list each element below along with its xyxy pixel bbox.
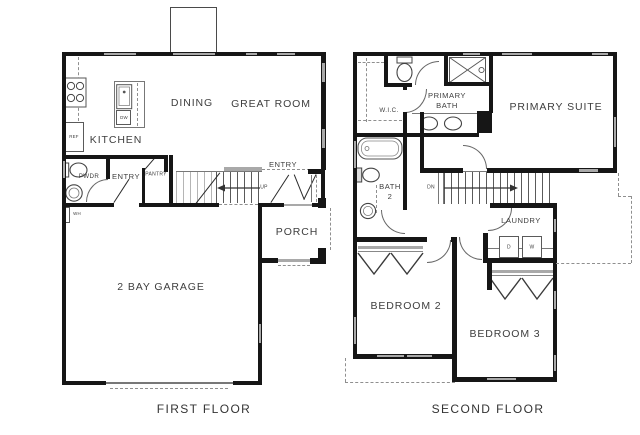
bath2-vanity-dash <box>376 185 377 213</box>
shower-icon <box>449 57 486 83</box>
bath2-door-arc <box>381 210 405 234</box>
stairs-down-arrow <box>442 182 520 194</box>
primary-bath-label-1: PRIMARY <box>428 92 466 100</box>
primary-suite-door-arc <box>463 145 487 169</box>
stair-bottom-wall <box>490 203 557 208</box>
wic-rod-dash <box>366 58 367 122</box>
roof-dash <box>618 196 631 197</box>
stair-rail <box>438 172 439 204</box>
bath2-toilet-icon <box>355 164 382 186</box>
hall-bath-wall <box>420 112 424 172</box>
wc-door-arc <box>415 61 439 85</box>
washer-label: W <box>529 246 534 251</box>
suite-right-wall <box>613 52 617 172</box>
roof-dash <box>345 382 455 383</box>
sf-window <box>502 53 532 55</box>
second-floor-title: SECOND FLOOR <box>432 403 545 415</box>
bath2-label-1: BATH <box>379 183 401 191</box>
sf-left-wall <box>353 52 357 359</box>
primary-suite-label: PRIMARY SUITE <box>510 102 603 113</box>
second-floor-plan: D W <box>0 0 640 435</box>
wic-right-wall <box>403 112 407 135</box>
wic-shelf-dash <box>358 62 384 63</box>
wic-label: W.I.C. <box>379 108 398 114</box>
bedroom3-window <box>554 291 556 309</box>
sf-top-wall <box>353 52 617 56</box>
roof-dash <box>631 196 632 263</box>
laundry-bottom-wall <box>483 258 557 263</box>
bedroom2-closet <box>358 246 423 276</box>
bath2-window <box>354 141 356 168</box>
roof-dash <box>556 263 631 264</box>
bedroom3-door-arc <box>459 237 482 260</box>
wic-shelf-dash <box>358 120 402 121</box>
bedroom-divider-wall <box>452 237 457 382</box>
laundry-label: LAUNDRY <box>501 217 541 225</box>
wc-toilet-icon <box>394 56 415 83</box>
vanity-end-wall <box>477 111 492 133</box>
laundry-window <box>554 219 556 232</box>
roof-dash <box>618 173 619 196</box>
bedroom2-top-wall <box>353 237 427 242</box>
bedroom3-bottom-window <box>487 378 516 380</box>
closet3-left-wall <box>487 262 492 290</box>
bedroom2-window <box>407 355 432 357</box>
bath2-right-wall <box>403 137 407 210</box>
suite-bottom-window <box>579 169 598 172</box>
shower-bottom-wall <box>444 82 490 86</box>
bedroom2-window <box>354 317 356 344</box>
bedroom3-label: BEDROOM 3 <box>469 329 540 340</box>
bedroom2-door-arc <box>427 240 451 263</box>
wic-right-wall <box>403 83 407 90</box>
stairs-down-label: DN <box>427 186 435 191</box>
dryer-label: D <box>507 246 511 251</box>
vanity-sinks-icon <box>417 114 465 133</box>
wic-door-arc <box>405 89 427 113</box>
sf-window <box>463 53 480 55</box>
suite-left-wall <box>489 52 493 113</box>
wc-bottom-wall <box>384 83 412 87</box>
suite-window <box>614 117 616 147</box>
laundry-counter <box>486 248 555 249</box>
bath2-label-2: 2 <box>388 193 393 201</box>
tub-icon <box>357 137 403 160</box>
wc-left-wall <box>384 52 388 86</box>
bedroom3-closet <box>490 270 553 301</box>
roof-dash <box>345 358 346 382</box>
bedroom2-bottom-wall <box>353 354 457 359</box>
bedroom3-window <box>554 355 556 371</box>
hall-top-wall <box>420 168 463 173</box>
bedroom2-label: BEDROOM 2 <box>370 301 441 312</box>
floor-plan: DW REF WH <box>0 0 640 435</box>
bath-bottom-wall <box>353 133 479 137</box>
sf-window <box>592 53 608 55</box>
primary-bath-label-2: BATH <box>436 102 458 110</box>
bath2-sink-icon <box>359 202 377 220</box>
bedroom2-window <box>377 355 404 357</box>
